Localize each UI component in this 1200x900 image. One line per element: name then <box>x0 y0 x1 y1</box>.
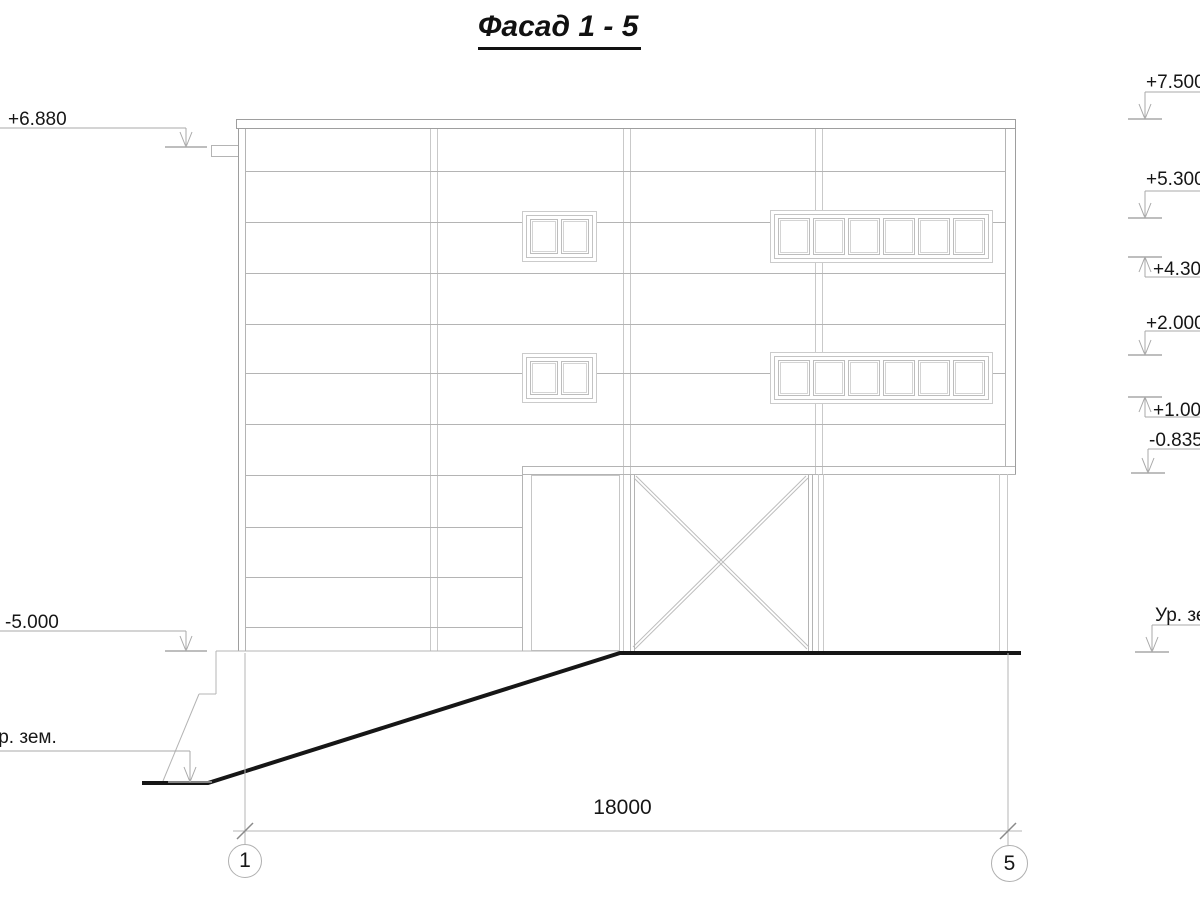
elevation-label: +4.300 <box>1153 259 1200 281</box>
siding-line <box>245 424 1005 425</box>
siding-line <box>245 627 522 628</box>
drawing-overlay <box>0 0 1200 900</box>
lower-wall-panel <box>531 475 620 651</box>
elevation-label: +6.880 <box>8 109 67 131</box>
foundation-outline <box>163 651 620 781</box>
dimension-value: 18000 <box>560 796 685 820</box>
ground-level-label: Ур. зем. <box>1155 605 1200 627</box>
brace-post <box>812 475 813 651</box>
wall-left-outer <box>238 129 239 651</box>
facade-step-edge <box>522 466 523 651</box>
wall-right-inner <box>1005 129 1006 466</box>
window-pane <box>918 218 950 255</box>
window-pane <box>848 360 880 396</box>
elevation-label: +7.500 <box>1146 72 1200 94</box>
window-pane <box>813 218 845 255</box>
scupper-protrusion <box>211 145 238 157</box>
window-pane <box>953 218 985 255</box>
window-pane <box>778 218 810 255</box>
window-ribbon-upper <box>770 210 993 263</box>
window-pane <box>883 360 915 396</box>
column-strip <box>630 129 631 474</box>
column-post <box>999 474 1000 652</box>
column-strip <box>430 129 431 651</box>
window-pane <box>530 219 558 254</box>
siding-line <box>245 475 522 476</box>
brace-post <box>630 475 631 651</box>
x-brace <box>633 476 809 649</box>
siding-line <box>245 527 522 528</box>
window-pane <box>813 360 845 396</box>
elevation-label: -0.835 <box>1149 430 1200 452</box>
elevation-label: -5.000 <box>5 612 59 634</box>
column-strip <box>623 129 624 474</box>
facade-sheet: Фасад 1 - 5 <box>0 0 1200 900</box>
elevation-label: +5.300 <box>1146 169 1200 191</box>
column-post <box>1007 474 1008 652</box>
column-strip <box>822 129 823 474</box>
window-pane <box>778 360 810 396</box>
brace-post <box>808 475 809 651</box>
siding-line <box>245 324 1005 325</box>
column-post <box>823 474 824 652</box>
window-pane <box>883 218 915 255</box>
axis-bubble-1: 1 <box>228 844 262 878</box>
column-strip <box>437 129 438 651</box>
window-2pane-upper <box>522 211 597 262</box>
ground-level-label: Ур. зем. <box>0 727 57 749</box>
elevation-marker-glyphs <box>0 92 1200 782</box>
column-strip <box>815 129 816 474</box>
window-pane <box>561 361 589 395</box>
axis-number: 1 <box>239 849 251 873</box>
drawing-title: Фасад 1 - 5 <box>478 12 641 50</box>
window-ribbon-lower <box>770 352 993 404</box>
wall-left-inner <box>245 129 246 651</box>
elevation-label: +2.000 <box>1146 313 1200 335</box>
window-2pane-lower <box>522 353 597 403</box>
siding-line <box>245 171 1005 172</box>
window-pane <box>953 360 985 396</box>
ground-line <box>142 653 1021 783</box>
window-pane <box>530 361 558 395</box>
siding-line <box>245 273 1005 274</box>
dimension-ticks <box>237 823 1016 839</box>
window-pane <box>561 219 589 254</box>
floor-band-top <box>522 466 1015 467</box>
parapet-cap <box>236 119 1016 129</box>
window-pane <box>918 360 950 396</box>
panel-edge-line <box>623 475 624 651</box>
wall-right-outer <box>1015 129 1016 474</box>
column-post <box>818 474 819 652</box>
window-pane <box>848 218 880 255</box>
siding-line <box>245 577 522 578</box>
axis-bubble-5: 5 <box>991 845 1028 882</box>
axis-number: 5 <box>1004 852 1016 876</box>
brace-post <box>634 475 635 651</box>
elevation-label: +1.000 <box>1153 400 1200 422</box>
